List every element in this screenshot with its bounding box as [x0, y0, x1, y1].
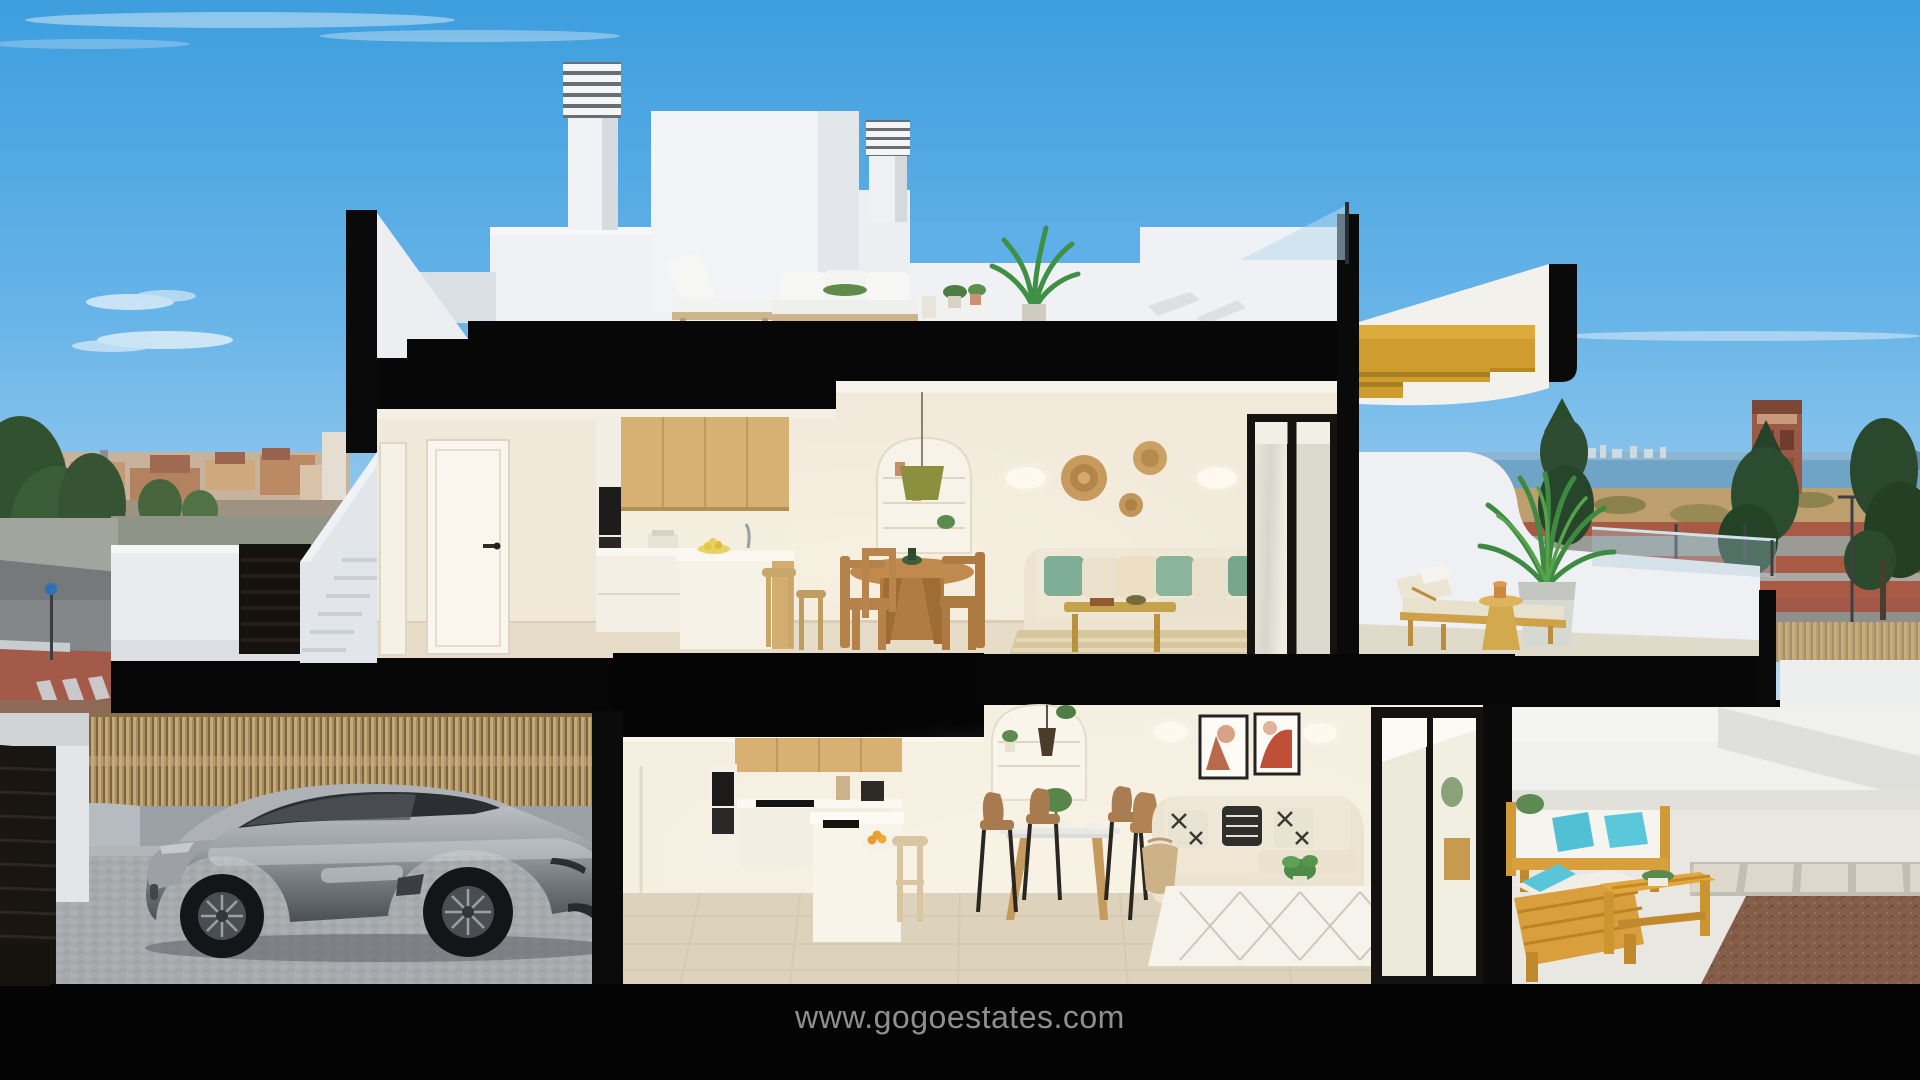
svg-text:www.gogoestates.com: www.gogoestates.com [794, 999, 1125, 1035]
